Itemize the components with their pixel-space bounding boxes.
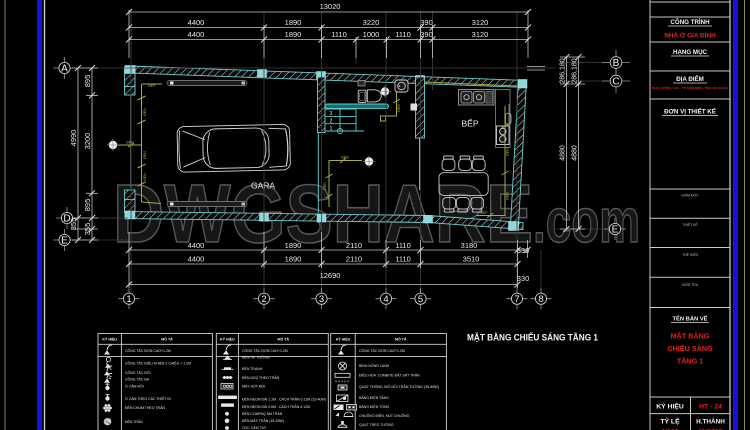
svg-text:3200: 3200 (83, 133, 92, 150)
svg-text:CÔNG TẮC ĐƠN CAO+1.2M: CÔNG TẮC ĐƠN CAO+1.2M (359, 348, 405, 353)
svg-text:ĐÈN TRẦN: ĐÈN TRẦN (125, 419, 143, 424)
svg-text:3120: 3120 (472, 30, 489, 39)
svg-text:1110: 1110 (331, 30, 347, 39)
svg-text:TỶ LỆ: TỶ LỆ (660, 417, 680, 426)
svg-text:BẢNG ĐIỆN TỔNG: BẢNG ĐIỆN TỔNG (359, 404, 390, 409)
svg-text:TẦNG 1: TẦNG 1 (677, 356, 703, 366)
svg-text:ĐỊA ĐIỂM: ĐỊA ĐIỂM (676, 76, 704, 83)
svg-text:ĐÈN: ĐÈN (505, 192, 510, 200)
svg-text:ĐÈN MÂY TRẦN (15-25W): ĐÈN MÂY TRẦN (15-25W) (242, 418, 284, 423)
svg-text:ĐÈN: ĐÈN (322, 182, 327, 190)
svg-text:1110: 1110 (395, 30, 411, 39)
svg-text:4400: 4400 (188, 18, 205, 27)
svg-text:ĐÈN NEON DÀI 0.6M ..CÁCH TRẦN: ĐÈN NEON DÀI 0.6M ..CÁCH TRẦN 0.12M (242, 404, 310, 409)
svg-text:ĐÈN: ĐÈN (341, 155, 349, 160)
svg-text:THIẾT KẾ: THIẾT KẾ (682, 222, 698, 227)
svg-text:GIÁM ĐỐC: GIÁM ĐỐC (681, 193, 699, 198)
svg-text:4400: 4400 (188, 241, 205, 250)
svg-text:H.THÀNH: H.THÀNH (696, 417, 725, 426)
svg-text:ĐÈN: ĐÈN (505, 148, 510, 156)
svg-text:3180: 3180 (461, 241, 478, 250)
svg-text:7: 7 (514, 294, 519, 305)
svg-text:CÔNG TẮC ĐIỀU KHIỂN 2 CHIỀU +: CÔNG TẮC ĐIỀU KHIỂN 2 CHIỀU + 1.2M (125, 361, 191, 366)
svg-text:355: 355 (83, 223, 92, 236)
svg-text:2110: 2110 (346, 241, 362, 250)
svg-text:2: 2 (330, 119, 333, 125)
svg-text:895: 895 (83, 199, 92, 212)
svg-text:5: 5 (418, 294, 423, 305)
svg-text:MÁY HÚT MÙI: MÁY HÚT MÙI (242, 385, 265, 389)
svg-text:ĐÈN NGỦ THEO TRẦN: ĐÈN NGỦ THEO TRẦN (242, 375, 280, 380)
svg-text:286,180: 286,180 (560, 58, 567, 83)
svg-text:ĐƠN VỊ THIẾT KẾ: ĐƠN VỊ THIẾT KẾ (664, 109, 716, 116)
svg-text:.com: .com (533, 187, 640, 256)
svg-text:CÔNG TẮC ĐƠN CAO+1.2M: CÔNG TẮC ĐƠN CAO+1.2M (242, 348, 288, 353)
svg-text:ĐIỀU HÒA .COMBITE ĐẶT SÁT TRẦN: ĐIỀU HÒA .COMBITE ĐẶT SÁT TRẦN (359, 373, 420, 378)
svg-text:ĐÈN: ĐÈN (396, 104, 401, 112)
svg-text:ĐÈN COMPAQ ÂM TRẦN: ĐÈN COMPAQ ÂM TRẦN (242, 411, 283, 416)
svg-text:MẶT BẰNG: MẶT BẰNG (671, 332, 710, 341)
svg-text:BẢNG ĐIỆN TẦNG: BẢNG ĐIỆN TẦNG (359, 395, 389, 400)
svg-text:ĐÈN TRANH: ĐÈN TRANH (242, 366, 263, 371)
svg-text:E: E (612, 225, 619, 236)
svg-text:12690: 12690 (320, 271, 341, 280)
svg-text:Ổ CẮM ĐÔI: Ổ CẮM ĐÔI (125, 384, 144, 389)
svg-text:A: A (61, 64, 68, 75)
svg-text:B: B (613, 58, 620, 69)
svg-text:4880: 4880 (560, 145, 567, 161)
svg-text:1000: 1000 (363, 30, 380, 39)
svg-text:4400: 4400 (188, 255, 205, 264)
svg-text:MẶT BẰNG CHIẾU SÁNG TẦNG 1: MẶT BẰNG CHIẾU SÁNG TẦNG 1 (467, 333, 599, 344)
svg-text:CHUÔNG ĐIỆN, NÚT CHUÔNG: CHUÔNG ĐIỆN, NÚT CHUÔNG (359, 413, 410, 418)
svg-text:KÝ HIỆU: KÝ HIỆU (220, 337, 235, 342)
svg-text:ĐÈN: ĐÈN (142, 151, 147, 159)
svg-text:BẾP: BẾP (461, 119, 478, 129)
svg-text:CÔNG TẮC BA: CÔNG TẮC BA (125, 377, 150, 382)
svg-text:BẾP: BẾP (480, 210, 488, 215)
svg-text:GARA: GARA (251, 181, 275, 191)
svg-text:THỂ HIỆN: THỂ HIỆN (682, 252, 698, 257)
svg-text:MÔ TẢ: MÔ TẢ (161, 337, 173, 342)
svg-text:ĐÈN ỐP TƯỜNG: ĐÈN ỐP TƯỜNG (242, 355, 270, 360)
svg-text:4990: 4990 (69, 130, 78, 147)
svg-text:CÔNG TẮC ĐƠN CAO+1.2M: CÔNG TẮC ĐƠN CAO+1.2M (125, 348, 171, 353)
svg-text:13020: 13020 (320, 2, 341, 11)
svg-text:TÊN BẢN VẼ: TÊN BẢN VẼ (672, 315, 707, 323)
svg-text:1110: 1110 (395, 255, 411, 264)
svg-text:1: 1 (126, 294, 131, 305)
svg-text:Ổ CẮM THEO CÁC THIẾT BỊ: Ổ CẮM THEO CÁC THIẾT BỊ (125, 396, 171, 401)
svg-text:CÔNG TRÌNH: CÔNG TRÌNH (670, 18, 710, 26)
svg-text:E: E (61, 236, 68, 247)
svg-text:3120: 3120 (472, 18, 489, 27)
svg-text:C: C (612, 77, 619, 88)
svg-text:4880: 4880 (572, 145, 579, 161)
svg-text:BÌNH NÓNG LẠNH: BÌNH NÓNG LẠNH (359, 363, 390, 368)
svg-text:HT - 24: HT - 24 (699, 404, 722, 411)
svg-text:MÔ TẢ: MÔ TẢ (395, 337, 407, 342)
svg-text:KIỂM TRA: KIỂM TRA (682, 282, 699, 287)
svg-text:KÝ HIỆU: KÝ HIỆU (656, 402, 684, 411)
svg-text:ĐÈN NEON DÀI 1.2M ..CÁCH TRẦN: ĐÈN NEON DÀI 1.2M ..CÁCH TRẦN 0.12M (16-… (242, 397, 326, 402)
svg-text:1890: 1890 (285, 18, 302, 27)
svg-text:KÝ HIỆU: KÝ HIỆU (102, 337, 117, 342)
svg-text:QUẠT THÔNG GIÓ NỐI TRẦN,TƯỜNG: QUẠT THÔNG GIÓ NỐI TRẦN,TƯỜNG (35-45W) (359, 384, 439, 389)
svg-text:4400: 4400 (188, 30, 205, 39)
svg-text:CỌC CẮM TIVI: CỌC CẮM TIVI (242, 425, 266, 430)
svg-text:ĐÈN: ĐÈN (142, 108, 147, 116)
svg-text:NHÀ VƯỜNG CẤU - TP KINH ĐỊNH,: NHÀ VƯỜNG CẤU - TP KINH ĐỊNH, TỈNH AN GI… (652, 85, 728, 90)
svg-text:ĐÈN CHÙM THEO TRẦN: ĐÈN CHÙM THEO TRẦN (125, 405, 165, 410)
svg-text:2110: 2110 (346, 255, 362, 264)
svg-text:HẠNG MỤC: HẠNG MỤC (673, 49, 708, 56)
svg-text:4: 4 (383, 294, 388, 305)
svg-text:3510: 3510 (463, 255, 480, 264)
svg-text:8: 8 (538, 294, 543, 305)
svg-text:1: 1 (330, 126, 333, 132)
svg-text:1890: 1890 (285, 241, 302, 250)
svg-text:BẾP: BẾP (148, 83, 156, 88)
svg-text:3220: 3220 (363, 18, 380, 27)
svg-text:895: 895 (83, 75, 92, 88)
svg-text:CHIẾU SÁNG: CHIẾU SÁNG (667, 343, 713, 353)
svg-text:KÝ HIỆU: KÝ HIỆU (336, 337, 351, 342)
svg-text:QUẠT TREO TƯỜNG: QUẠT TREO TƯỜNG (359, 422, 394, 427)
svg-text:330: 330 (517, 274, 530, 283)
svg-text:3: 3 (319, 294, 324, 305)
svg-text:NHÀ Ở GIA ĐÌNH: NHÀ Ở GIA ĐÌNH (664, 31, 716, 40)
svg-text:3: 3 (330, 111, 333, 117)
svg-text:ĐÈN: ĐÈN (126, 140, 134, 145)
svg-text:2: 2 (261, 294, 266, 305)
svg-text:MÔ TẢ: MÔ TẢ (278, 337, 290, 342)
svg-text:286,180: 286,180 (572, 58, 579, 83)
svg-text:CÔNG TẮC ĐÔI: CÔNG TẮC ĐÔI (125, 370, 151, 375)
svg-text:ĐÈN: ĐÈN (142, 173, 147, 181)
svg-text:1110: 1110 (395, 241, 411, 250)
svg-text:1890: 1890 (285, 30, 302, 39)
svg-text:1890: 1890 (285, 255, 302, 264)
